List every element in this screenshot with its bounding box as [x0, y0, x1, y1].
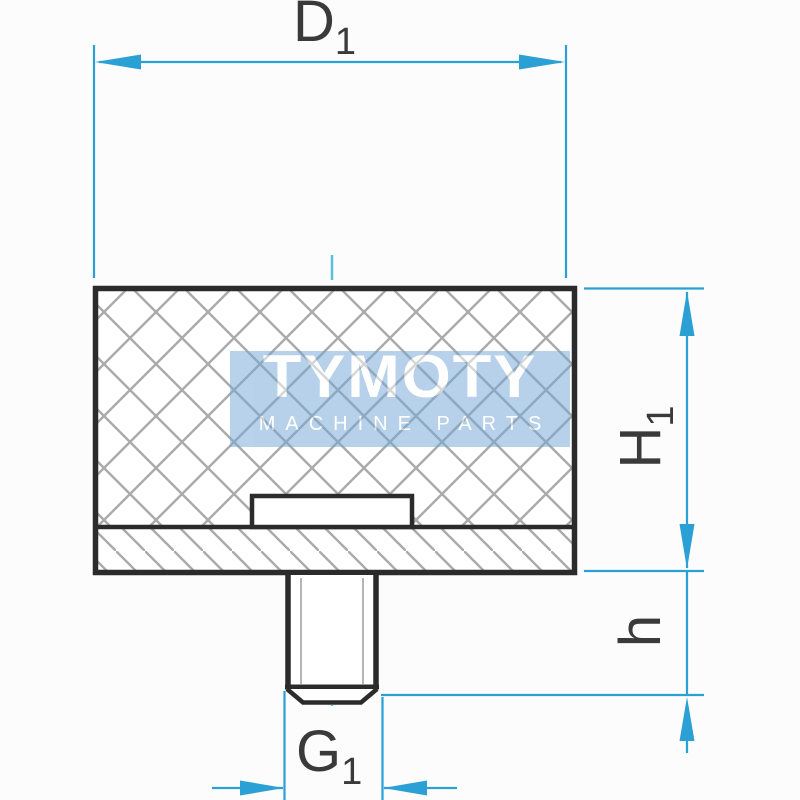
g1-symbol: G [296, 719, 341, 784]
stud-chamfer [287, 689, 377, 703]
dimension-label-h: h [612, 615, 670, 647]
watermark: TYMOTY MACHINE PARTS [230, 351, 570, 447]
h1-arrow-up-icon [680, 291, 695, 336]
stud-fill [286, 575, 378, 687]
dimension-h [381, 571, 704, 753]
embedded-metal-plate [252, 496, 412, 527]
h1-arrow-down-icon [680, 524, 695, 569]
h1-subscript: 1 [640, 405, 682, 426]
watermark-tagline: MACHINE PARTS [249, 414, 552, 434]
dimension-label-g1: G1 [296, 723, 362, 791]
base-plate-hatch [96, 527, 574, 572]
d1-arrow-right-icon [519, 55, 565, 70]
watermark-brand: TYMOTY [263, 347, 538, 407]
threaded-stud [285, 575, 379, 703]
dimension-d1 [94, 45, 566, 278]
dimension-label-d1: D1 [293, 0, 356, 61]
h-arrow-up-icon [680, 697, 695, 741]
d1-subscript: 1 [335, 21, 356, 63]
technical-drawing-canvas: D1 H1 h G1 TYMOTY MACHINE PARTS [0, 0, 800, 800]
d1-arrow-left-icon [95, 55, 141, 70]
h-symbol: h [608, 615, 673, 647]
d1-symbol: D [293, 0, 335, 54]
h1-symbol: H [608, 427, 673, 469]
dimension-label-h1: H1 [612, 405, 680, 468]
g1-subscript: 1 [341, 751, 362, 793]
g1-arrow-right-icon [240, 781, 284, 796]
g1-arrow-left-icon [383, 781, 427, 796]
d1-extension-lines [94, 45, 566, 278]
